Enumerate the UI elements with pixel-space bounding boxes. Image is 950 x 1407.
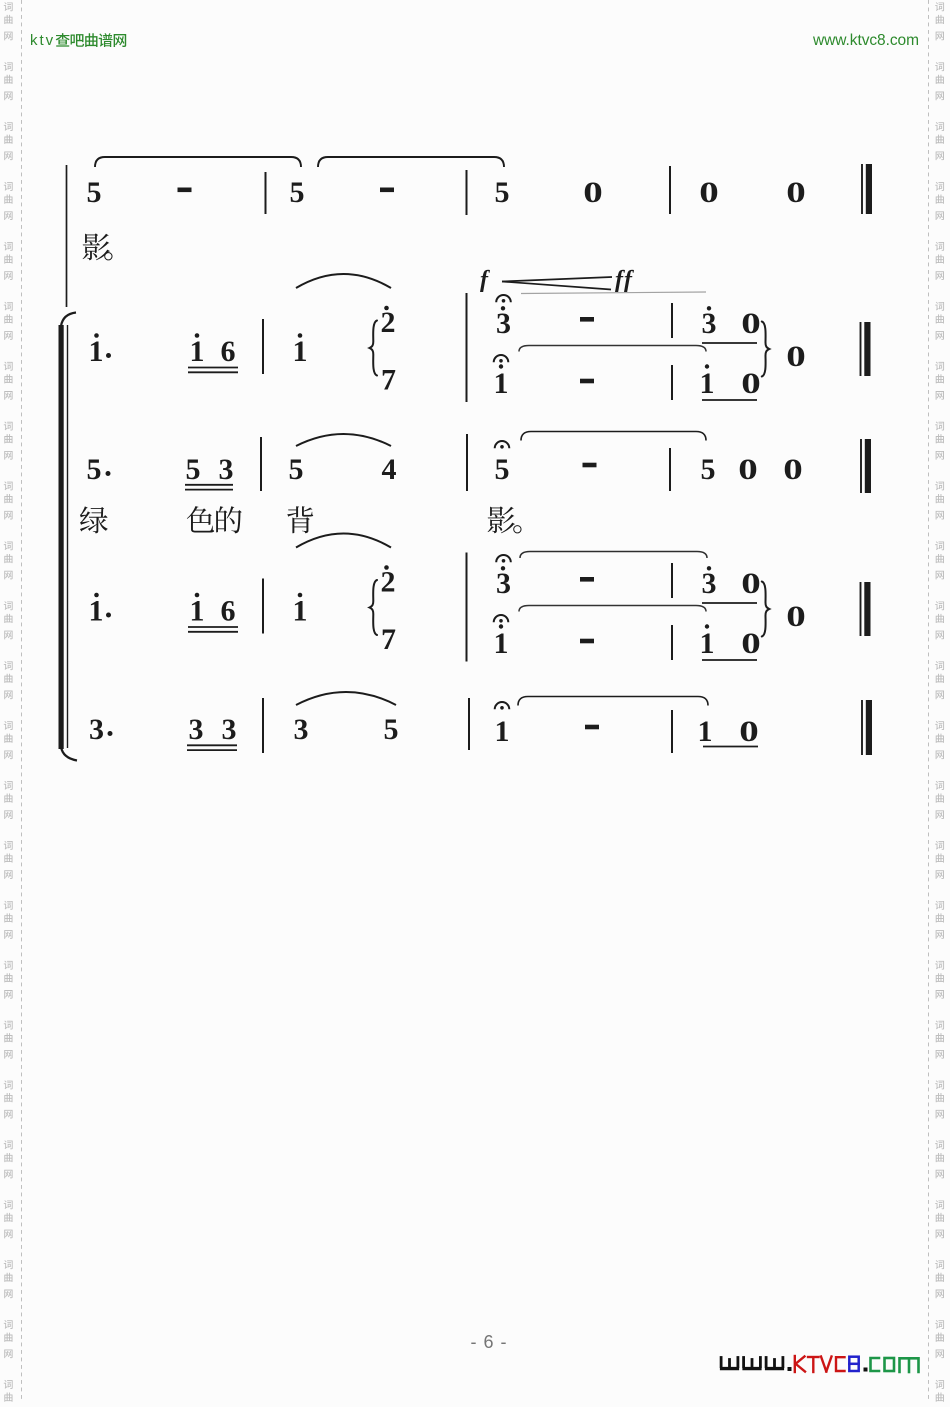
svg-text:1: 1 xyxy=(700,367,715,400)
svg-text:5: 5 xyxy=(701,453,716,486)
svg-text:0: 0 xyxy=(741,306,760,340)
svg-text:5: 5 xyxy=(289,453,304,486)
svg-text:5: 5 xyxy=(495,176,510,209)
svg-text:5: 5 xyxy=(87,176,102,209)
svg-text:0: 0 xyxy=(739,714,758,748)
svg-text:1: 1 xyxy=(190,335,205,368)
svg-text:0: 0 xyxy=(786,339,805,373)
svg-text:0: 0 xyxy=(786,599,805,633)
svg-text:2: 2 xyxy=(381,306,396,339)
svg-text:0: 0 xyxy=(741,566,760,600)
svg-text:7: 7 xyxy=(381,364,396,397)
svg-text:5: 5 xyxy=(290,176,305,209)
svg-text:3: 3 xyxy=(702,567,717,600)
svg-text:- 6 -: - 6 - xyxy=(470,1332,507,1352)
svg-text:1: 1 xyxy=(293,335,308,368)
svg-text:0: 0 xyxy=(583,175,602,209)
svg-text:1: 1 xyxy=(89,595,104,628)
svg-text:5: 5 xyxy=(384,713,399,746)
svg-text:5: 5 xyxy=(186,453,201,486)
svg-text:6: 6 xyxy=(221,595,236,628)
svg-text:0: 0 xyxy=(783,452,802,486)
svg-text:6: 6 xyxy=(221,335,236,368)
svg-text:1: 1 xyxy=(494,367,509,400)
svg-text:1: 1 xyxy=(89,335,104,368)
svg-text:f: f xyxy=(480,267,490,293)
svg-text:1: 1 xyxy=(494,627,509,660)
svg-text:3: 3 xyxy=(496,567,511,600)
svg-text:3: 3 xyxy=(189,713,204,746)
svg-text:1: 1 xyxy=(698,715,713,748)
svg-text:5: 5 xyxy=(495,453,510,486)
svg-text:0: 0 xyxy=(738,452,757,486)
svg-text:3: 3 xyxy=(294,713,309,746)
svg-text:0: 0 xyxy=(786,175,805,209)
svg-text:1: 1 xyxy=(293,595,308,628)
svg-text:3: 3 xyxy=(496,307,511,340)
svg-text:0: 0 xyxy=(741,366,760,400)
svg-text:ff: ff xyxy=(615,267,634,293)
svg-text:1: 1 xyxy=(495,715,510,748)
svg-text:5: 5 xyxy=(87,453,102,486)
svg-text:www.ktvc8.com: www.ktvc8.com xyxy=(812,32,919,49)
svg-text:4: 4 xyxy=(382,453,397,486)
svg-text:3: 3 xyxy=(702,307,717,340)
svg-text:7: 7 xyxy=(381,623,396,656)
svg-text:2: 2 xyxy=(381,566,396,599)
svg-text:0: 0 xyxy=(699,175,718,209)
svg-text:0: 0 xyxy=(741,626,760,660)
svg-text:3: 3 xyxy=(222,713,237,746)
svg-text:3: 3 xyxy=(89,713,104,746)
svg-text:1: 1 xyxy=(190,595,205,628)
svg-text:1: 1 xyxy=(700,627,715,660)
svg-text:3: 3 xyxy=(219,453,234,486)
svg-text:ktv: ktv xyxy=(30,32,55,49)
